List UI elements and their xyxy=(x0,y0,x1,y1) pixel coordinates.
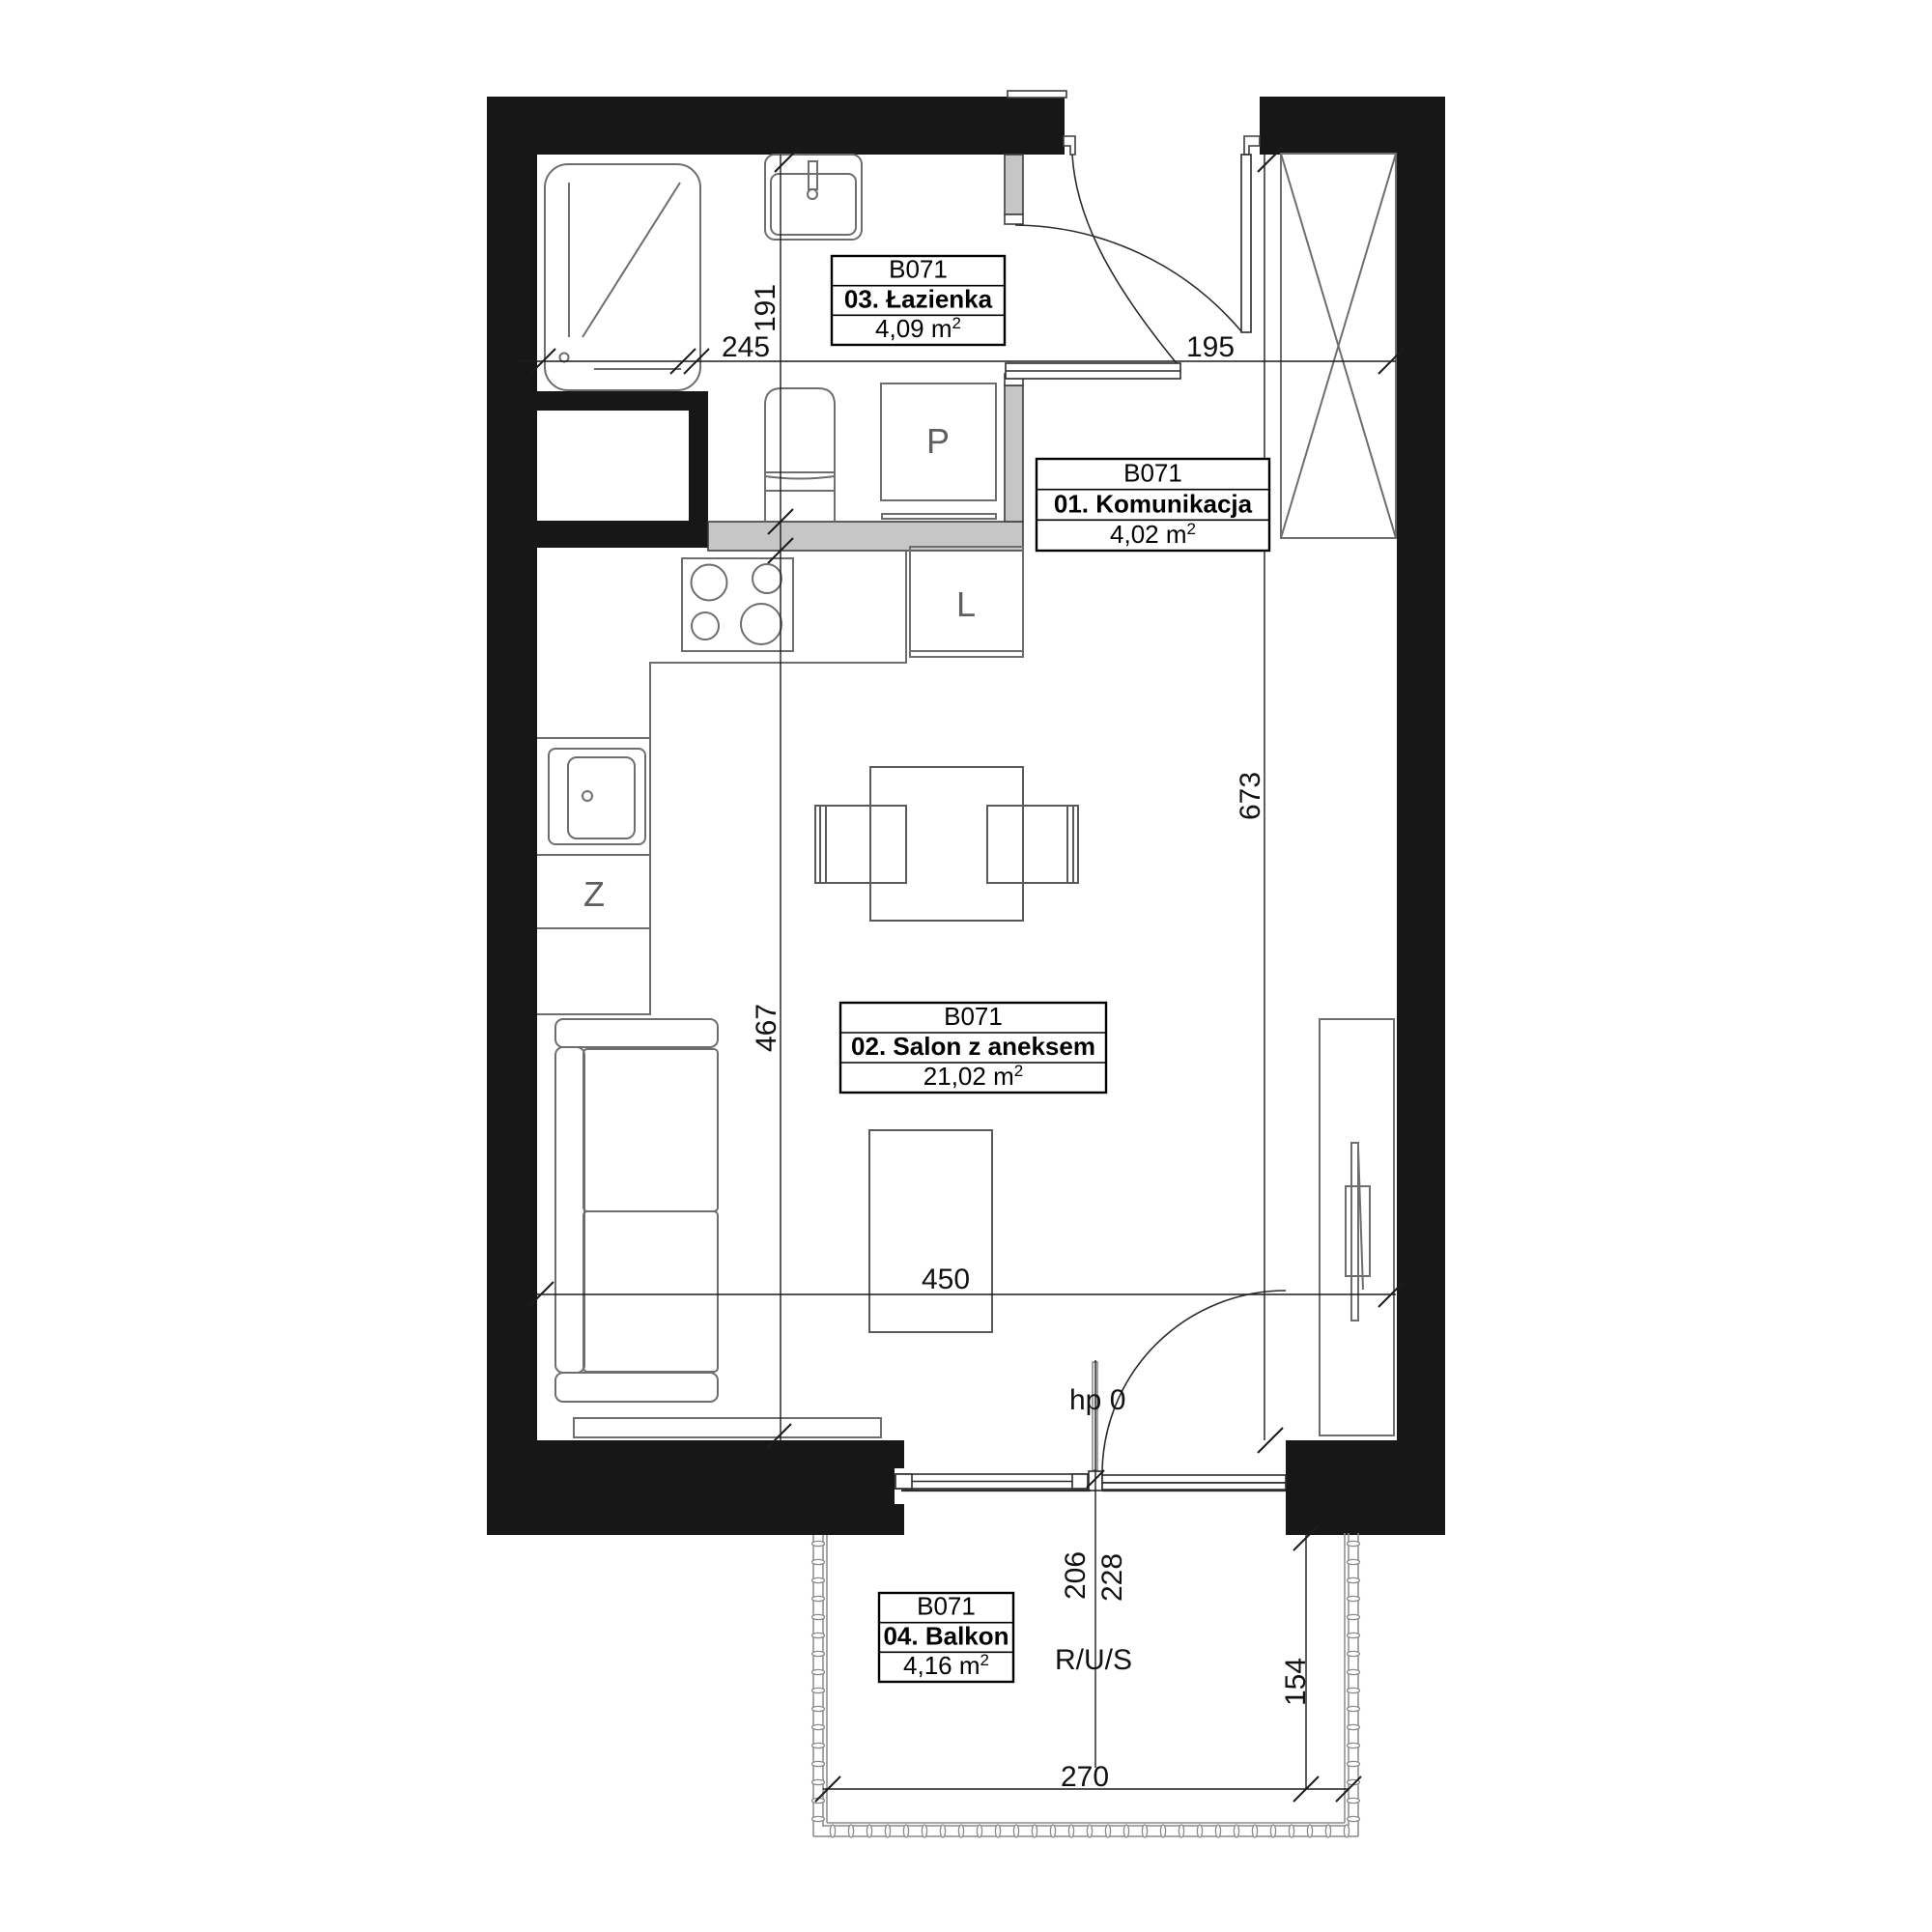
svg-text:B071: B071 xyxy=(1123,459,1182,488)
svg-text:L: L xyxy=(956,584,976,624)
svg-text:21,02 m2: 21,02 m2 xyxy=(923,1062,1023,1091)
svg-text:R/U/S: R/U/S xyxy=(1055,1644,1132,1676)
svg-text:206: 206 xyxy=(1060,1551,1092,1600)
svg-text:673: 673 xyxy=(1235,772,1266,820)
svg-text:4,16 m2: 4,16 m2 xyxy=(903,1651,989,1680)
svg-text:191: 191 xyxy=(750,284,781,332)
svg-text:03. Łazienka: 03. Łazienka xyxy=(844,284,993,313)
svg-text:P: P xyxy=(926,421,950,461)
svg-text:hp 0: hp 0 xyxy=(1069,1384,1125,1416)
svg-text:154: 154 xyxy=(1280,1658,1312,1706)
svg-text:B071: B071 xyxy=(917,1592,976,1621)
svg-text:01. Komunikacja: 01. Komunikacja xyxy=(1054,489,1253,518)
svg-text:04. Balkon: 04. Balkon xyxy=(883,1621,1009,1650)
svg-text:270: 270 xyxy=(1061,1761,1109,1793)
svg-text:450: 450 xyxy=(922,1264,970,1295)
svg-text:4,09 m2: 4,09 m2 xyxy=(875,314,961,343)
svg-text:B071: B071 xyxy=(944,1002,1003,1031)
svg-text:B071: B071 xyxy=(889,255,948,284)
svg-text:245: 245 xyxy=(722,331,770,363)
svg-text:195: 195 xyxy=(1186,331,1235,363)
svg-text:4,02 m2: 4,02 m2 xyxy=(1110,520,1196,549)
svg-text:467: 467 xyxy=(751,1004,782,1052)
svg-text:228: 228 xyxy=(1096,1553,1128,1602)
svg-text:02. Salon z aneksem: 02. Salon z aneksem xyxy=(851,1032,1095,1061)
svg-text:Z: Z xyxy=(583,874,605,914)
